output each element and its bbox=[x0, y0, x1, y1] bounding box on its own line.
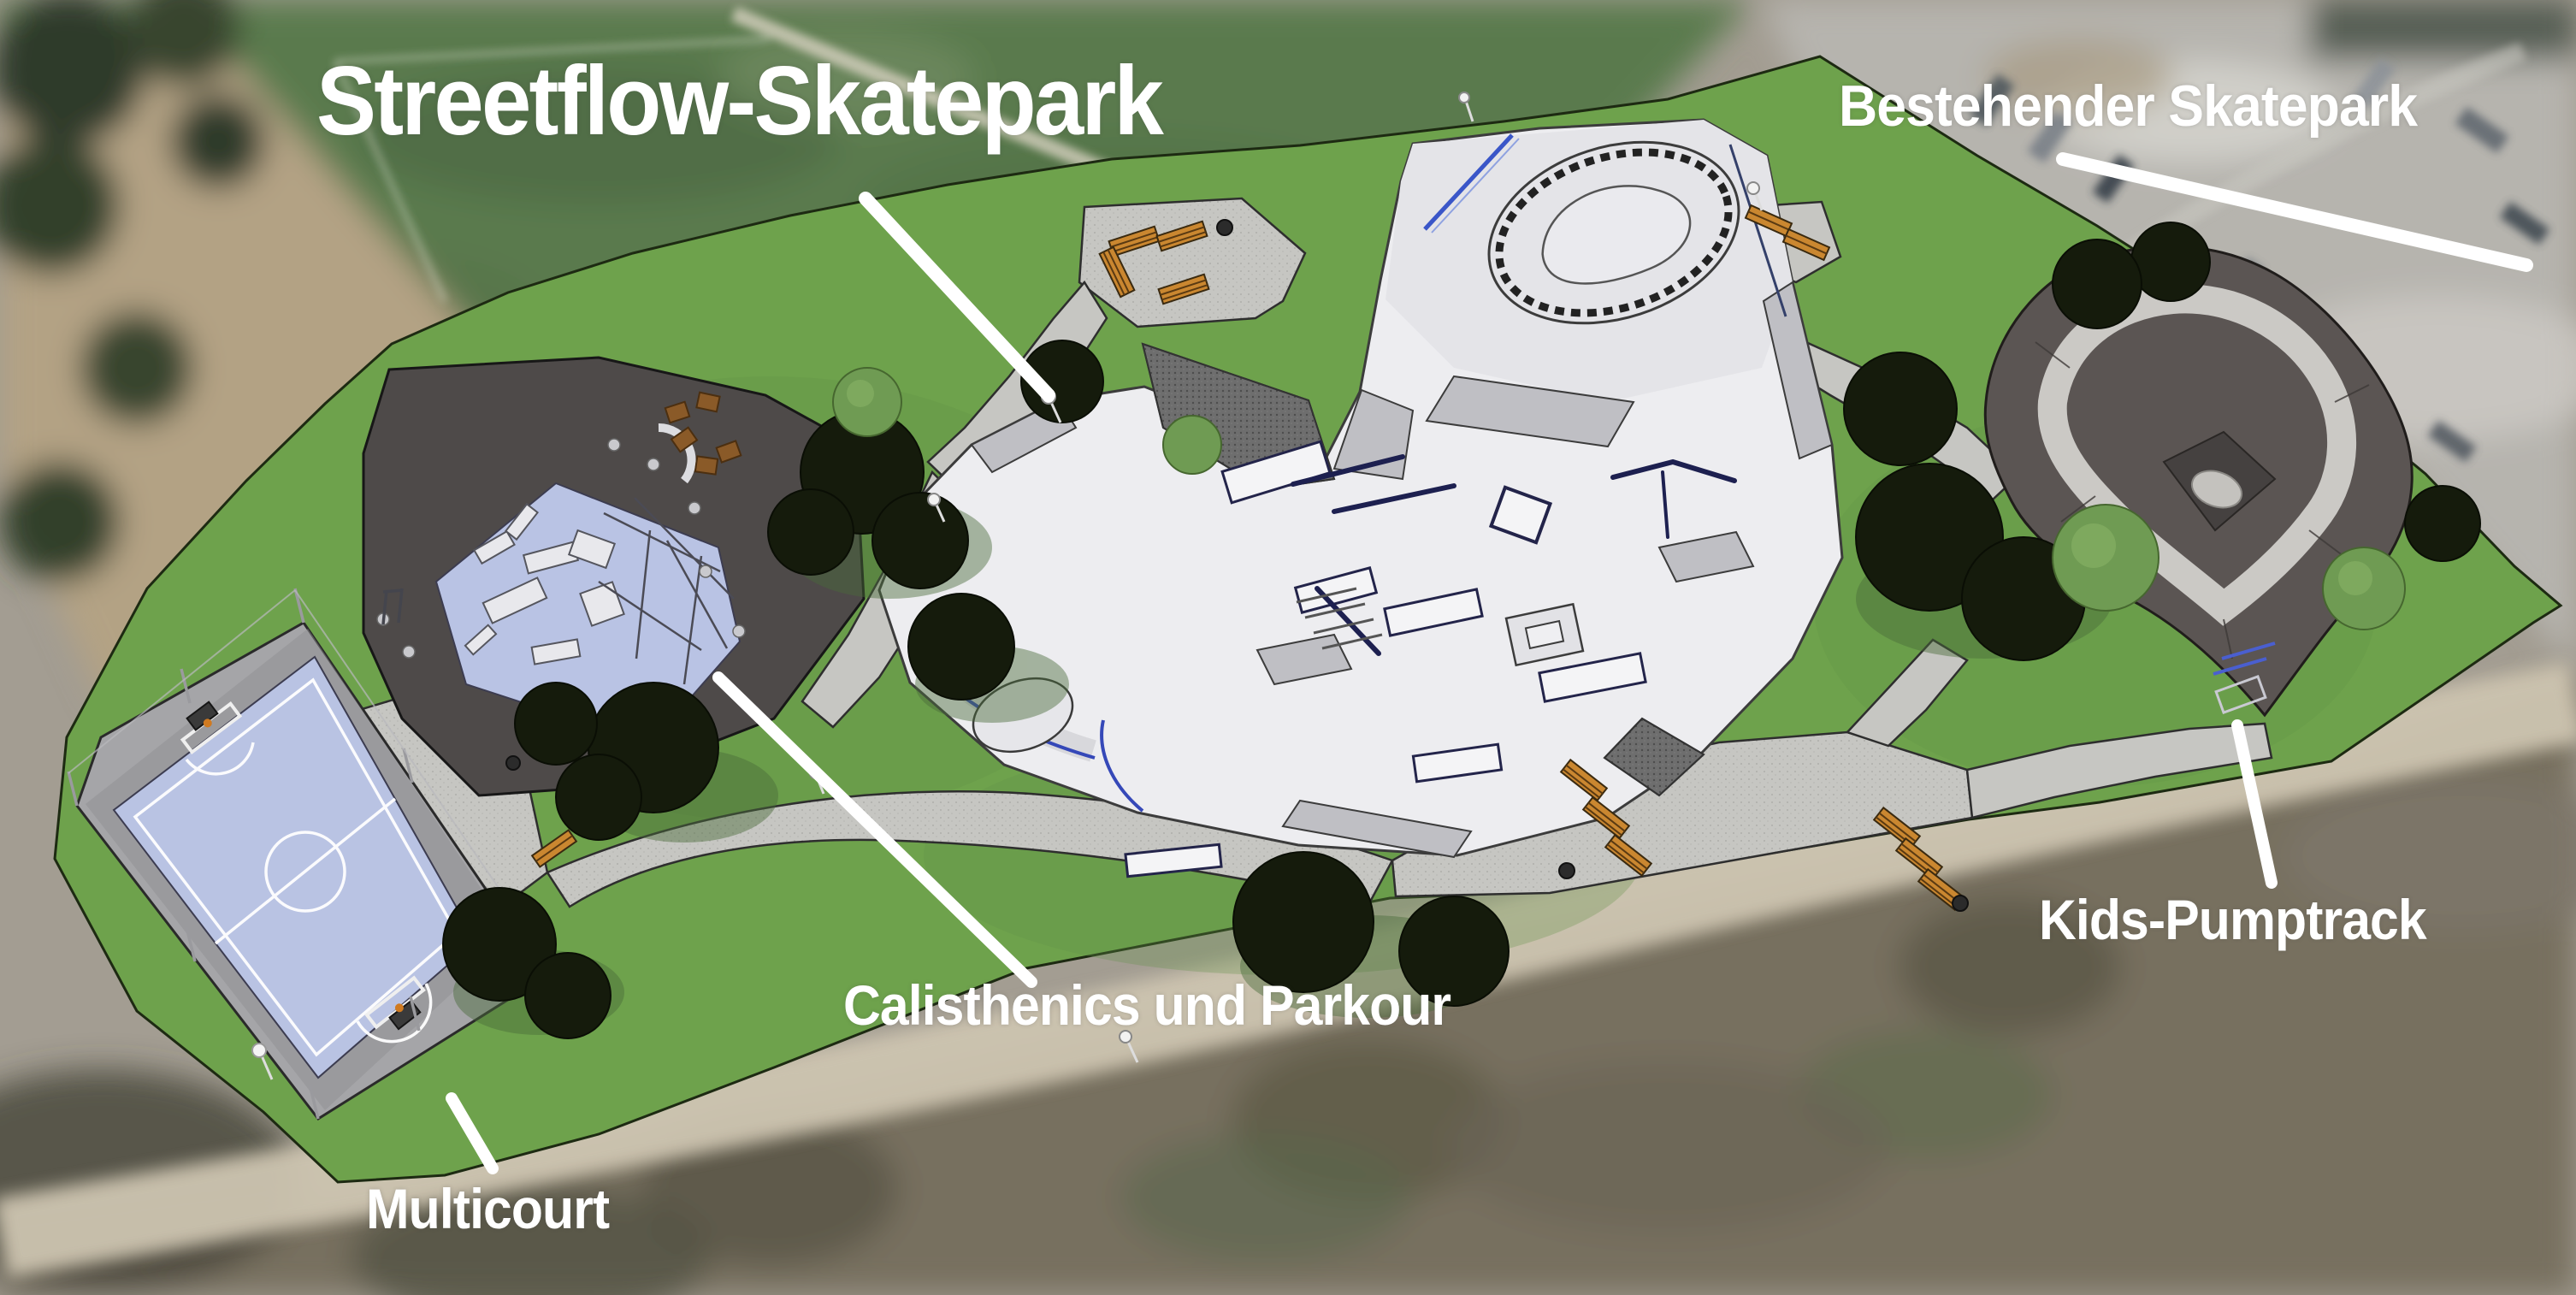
label-calisthenics-parkour: Calisthenics und Parkour bbox=[843, 977, 1450, 1033]
site-plan-rendering: Streetflow-Skatepark Bestehender Skatepa… bbox=[0, 0, 2576, 1295]
site-plan-canvas bbox=[0, 0, 2576, 1295]
label-title: Streetflow-Skatepark bbox=[316, 53, 1161, 151]
label-multicourt: Multicourt bbox=[366, 1180, 609, 1237]
label-existing-skatepark: Bestehender Skatepark bbox=[1839, 77, 2417, 135]
label-kids-pumptrack: Kids-Pumptrack bbox=[2039, 891, 2426, 948]
